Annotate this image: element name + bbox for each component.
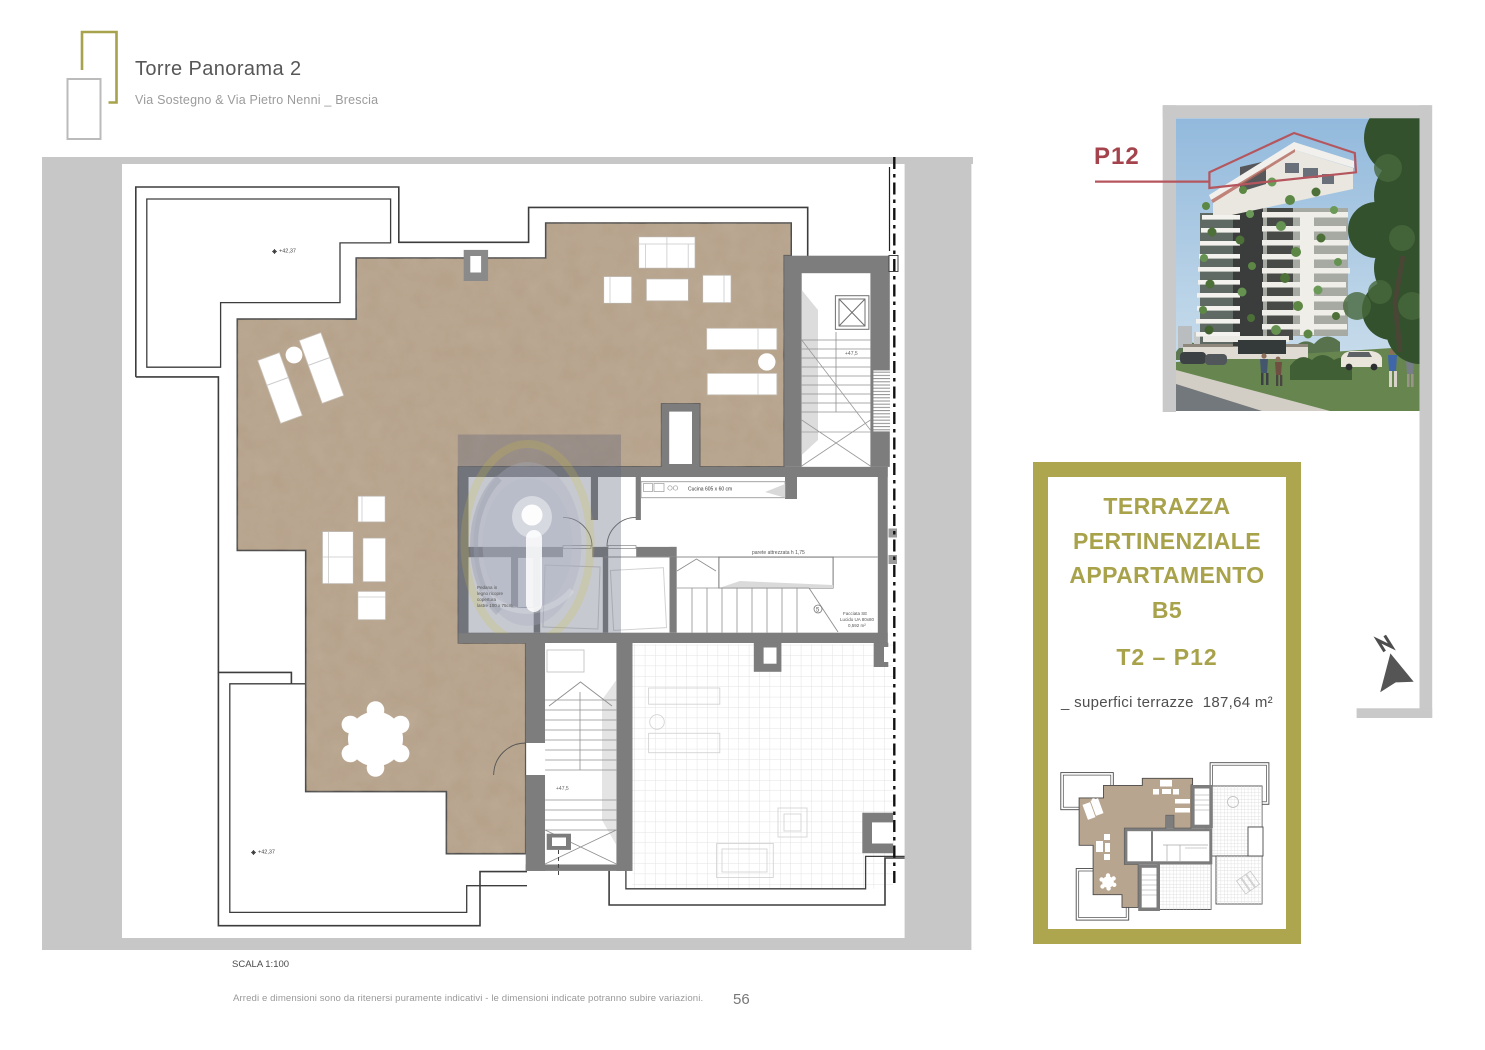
svg-text:parete attrezzata h 1,75: parete attrezzata h 1,75: [752, 550, 805, 556]
svg-text:Facciata SE: Facciata SE: [843, 611, 867, 616]
svg-text:+42,37: +42,37: [279, 249, 296, 255]
svg-text:+47,5: +47,5: [556, 786, 569, 792]
svg-text:+47,5: +47,5: [845, 351, 858, 357]
svg-text:lastre 100 x 75cm: lastre 100 x 75cm: [477, 603, 513, 608]
svg-text:Cucina 605 x 60 cm: Cucina 605 x 60 cm: [688, 487, 732, 493]
svg-text:Lucido UA 80x80: Lucido UA 80x80: [840, 617, 875, 622]
svg-text:0,592 m²: 0,592 m²: [848, 623, 866, 628]
svg-text:legno ricopre: legno ricopre: [477, 591, 504, 596]
svg-text:+42,37: +42,37: [258, 850, 275, 856]
svg-text:copertura: copertura: [477, 597, 497, 602]
svg-text:Pedana in: Pedana in: [477, 585, 498, 590]
